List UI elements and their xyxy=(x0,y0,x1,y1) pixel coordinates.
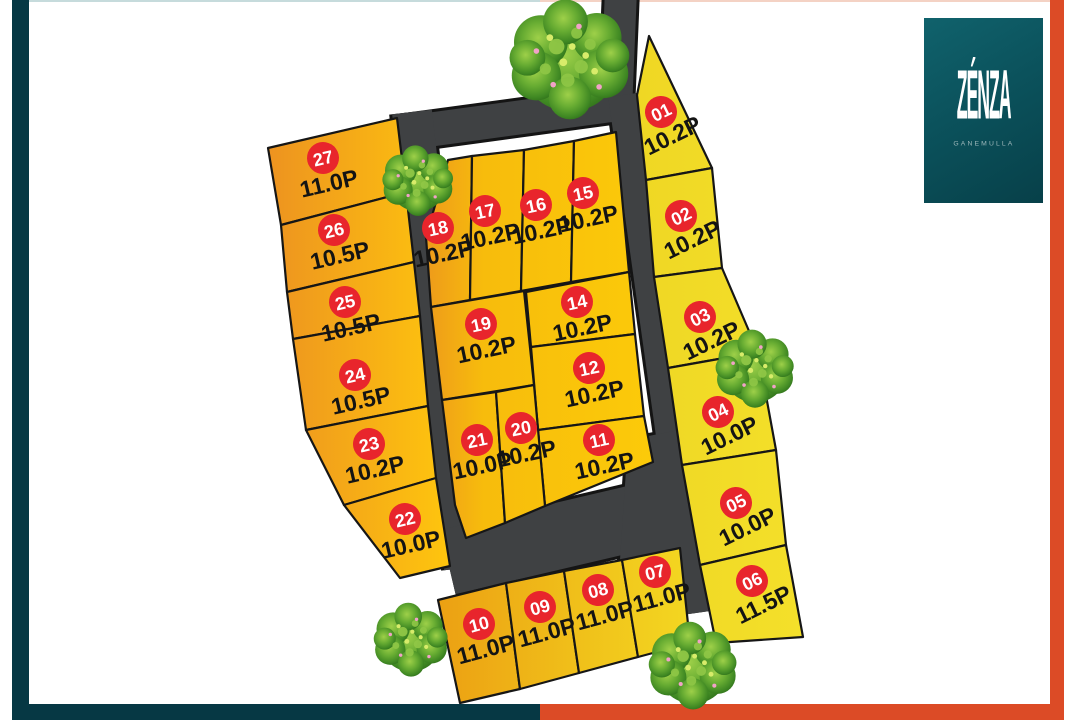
plot-16-number: 16 xyxy=(524,194,548,218)
site-plan-map: 27 11.0P 26 10.5P 25 10.5P 24 10.5P 23 xyxy=(0,0,1080,720)
plot-21-number: 21 xyxy=(465,429,489,453)
plot-15-number: 15 xyxy=(571,182,595,206)
plot-14-number: 14 xyxy=(565,291,589,315)
brand-name: ZÉNZA xyxy=(957,61,1011,131)
plot-18-number: 18 xyxy=(426,217,450,241)
poster-canvas: 27 11.0P 26 10.5P 25 10.5P 24 10.5P 23 xyxy=(0,0,1080,720)
plot-19-number: 19 xyxy=(469,313,493,337)
tree-icon xyxy=(374,603,448,677)
plot-17-number: 17 xyxy=(473,200,497,224)
plot-20-number: 20 xyxy=(509,417,533,441)
brand-location: GANEMULLA xyxy=(953,140,1014,148)
plot-12-number: 12 xyxy=(577,357,601,381)
brand-logo: ZÉNZA GANEMULLA xyxy=(924,18,1043,203)
plot-11-number: 11 xyxy=(588,429,611,453)
